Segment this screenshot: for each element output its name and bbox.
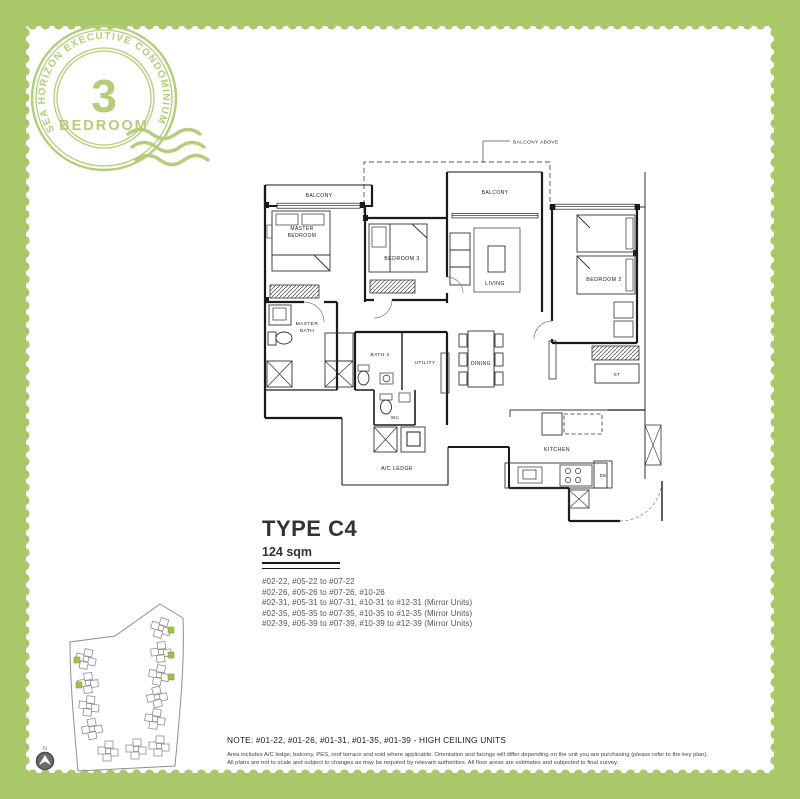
unit-list-line: #02-26, #05-26 to #07-26, #10-26 xyxy=(262,588,472,599)
floor-plan: BALCONY ABOVE xyxy=(252,125,672,527)
outer-perforation-top xyxy=(0,0,800,4)
disclaimer-line-1: Area includes A/C ledge, balcony, PES, r… xyxy=(227,751,789,759)
unit-list-line: #02-31, #05-31 to #07-31, #10-31 to #12-… xyxy=(262,598,472,609)
north-label: N xyxy=(43,746,47,752)
unit-type-block: TYPE C4 124 sqm #02-22, #05-22 to #07-22… xyxy=(262,516,472,630)
windows xyxy=(277,203,635,218)
room-label-master-bedroom-2: BEDROOM xyxy=(288,233,317,239)
balcony-above-projection xyxy=(364,141,550,213)
unit-list-line: #02-35, #05-35 to #07-35, #10-35 to #12-… xyxy=(262,609,472,620)
kitchen-top-counter xyxy=(510,410,608,435)
high-ceiling-note: NOTE: #01-22, #01-26, #01-31, #01-35, #0… xyxy=(227,735,506,745)
doors xyxy=(304,277,662,521)
north-compass: N xyxy=(37,746,54,770)
room-label-master-bath-2: BATH xyxy=(300,328,314,334)
stamp-number: 3 xyxy=(91,70,117,122)
room-label-st: ST xyxy=(614,372,621,377)
room-label-utility: UTILITY xyxy=(414,360,435,366)
outer-perforation-left xyxy=(0,0,4,799)
unit-list: #02-22, #05-22 to #07-22 #02-26, #05-26 … xyxy=(262,577,472,630)
right-ac-unit xyxy=(645,425,661,465)
disclaimer-text: Area includes A/C ledge, balcony, PES, r… xyxy=(227,751,789,767)
room-label-bedroom2: BEDROOM 2 xyxy=(586,277,621,283)
room-label-dining: DINING xyxy=(471,361,491,367)
entrance-door-arc xyxy=(620,481,662,521)
dining-cabinet xyxy=(549,341,556,379)
wc-fixtures xyxy=(380,393,410,414)
room-label-balcony-center: BALCONY xyxy=(482,190,509,196)
outer-perforation-bottom xyxy=(0,795,800,799)
room-label-wc: WC xyxy=(391,415,400,420)
bedroom2-beds xyxy=(577,215,635,337)
bath2-shower xyxy=(325,333,353,387)
bedroom2-wardrobe xyxy=(592,346,639,360)
unit-area: 124 sqm xyxy=(262,545,472,559)
bedroom3-wardrobe xyxy=(370,280,415,293)
room-label-balcony-above: BALCONY ABOVE xyxy=(513,140,559,146)
brochure-page: SEA HORIZON EXECUTIVE CONDOMINIUM 3 BEDR… xyxy=(0,0,800,799)
room-label-bedroom3: BEDROOM 3 xyxy=(384,256,419,262)
room-label-bath2: BATH 2 xyxy=(370,352,389,358)
unit-type-title: TYPE C4 xyxy=(262,516,472,542)
room-label-balcony-left: BALCONY xyxy=(306,193,333,199)
kitchen-bottom-counter xyxy=(505,461,612,488)
dining-set xyxy=(459,331,503,387)
room-label-db: DB xyxy=(600,473,607,478)
inner-perforation-right xyxy=(767,26,775,773)
building-clusters xyxy=(74,615,173,761)
entry-ac-box xyxy=(569,490,589,508)
bath2-fixtures xyxy=(358,365,393,385)
area-divider-rule xyxy=(262,562,340,569)
postmark-waves xyxy=(128,130,208,165)
disclaimer-line-2: All plans are not to scale and subject t… xyxy=(227,759,789,767)
room-label-living: LIVING xyxy=(485,281,505,287)
room-label-master-bath-1: MASTER xyxy=(296,321,319,327)
room-label-kitchen: KITCHEN xyxy=(544,447,570,453)
site-key-plan: N xyxy=(28,596,218,788)
master-wardrobe xyxy=(270,285,319,298)
unit-list-line: #02-22, #05-22 to #07-22 xyxy=(262,577,472,588)
three-bedroom-stamp-logo: SEA HORIZON EXECUTIVE CONDOMINIUM 3 BEDR… xyxy=(24,16,219,191)
master-bed xyxy=(267,211,330,271)
unit-list-line: #02-39, #05-39 to #07-39, #10-39 to #12-… xyxy=(262,619,472,630)
room-label-master-bedroom-1: MASTER xyxy=(290,226,313,232)
ac-ledge-units xyxy=(374,427,425,452)
master-bath-fixtures xyxy=(267,305,292,387)
walls xyxy=(265,172,645,521)
room-label-ac-ledge: A/C LEDGE xyxy=(381,466,413,472)
outer-perforation-right xyxy=(796,0,800,799)
bedroom3-bed xyxy=(369,224,427,272)
